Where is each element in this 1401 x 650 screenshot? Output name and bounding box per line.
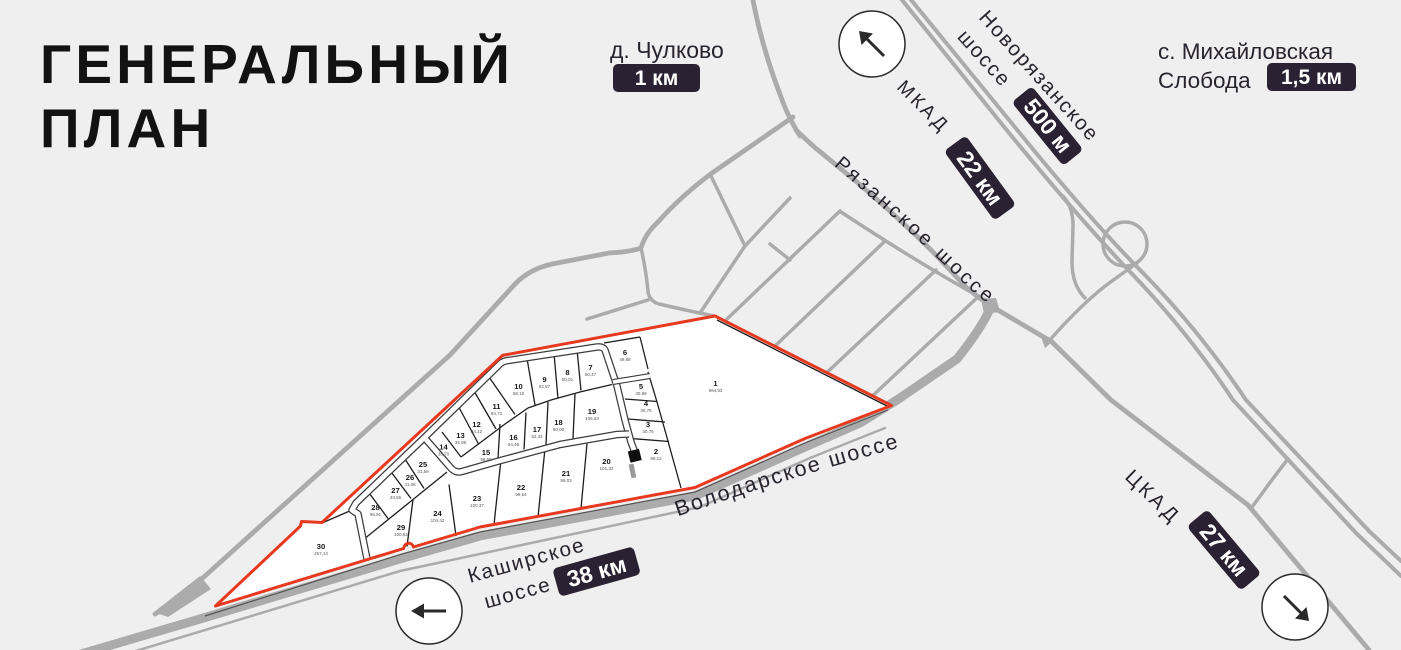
svg-text:100,82: 100,82 [394, 532, 408, 537]
svg-text:50,01: 50,01 [562, 377, 574, 382]
svg-text:д. Чулково: д. Чулково [610, 37, 724, 63]
svg-text:94,72: 94,72 [491, 411, 503, 416]
svg-text:19: 19 [588, 407, 596, 416]
svg-text:1 км: 1 км [635, 67, 679, 90]
svg-text:104,42: 104,42 [431, 518, 445, 523]
svg-text:30: 30 [317, 542, 325, 551]
svg-text:33,56: 33,56 [390, 495, 402, 500]
svg-text:30,75: 30,75 [642, 429, 654, 434]
svg-text:49,88: 49,88 [619, 357, 631, 362]
svg-text:9: 9 [542, 375, 546, 384]
svg-text:24: 24 [433, 509, 442, 518]
svg-text:12: 12 [472, 420, 480, 429]
svg-text:99,54: 99,54 [515, 492, 527, 497]
svg-text:30,76: 30,76 [640, 408, 652, 413]
svg-text:7: 7 [588, 363, 592, 372]
svg-text:29: 29 [397, 523, 405, 532]
svg-text:13: 13 [456, 431, 464, 440]
svg-text:31,59: 31,59 [417, 469, 429, 474]
svg-text:994,93: 994,93 [709, 388, 723, 393]
svg-text:2: 2 [654, 447, 658, 456]
svg-text:ГЕНЕРАЛЬНЫЙ: ГЕНЕРАЛЬНЫЙ [40, 32, 514, 95]
svg-text:35,98: 35,98 [455, 440, 467, 445]
svg-text:8: 8 [565, 368, 569, 377]
svg-text:18: 18 [554, 418, 562, 427]
svg-text:68,19: 68,19 [513, 391, 525, 396]
svg-text:25: 25 [419, 460, 428, 469]
svg-text:14: 14 [439, 443, 448, 452]
svg-text:21: 21 [562, 469, 571, 478]
svg-text:1,5 км: 1,5 км [1281, 66, 1342, 89]
svg-text:267,14: 267,14 [314, 551, 328, 556]
svg-text:26: 26 [406, 473, 414, 482]
svg-text:6: 6 [623, 348, 627, 357]
svg-text:11: 11 [492, 402, 501, 411]
svg-text:34,12: 34,12 [471, 429, 483, 434]
svg-text:54,46: 54,46 [508, 442, 520, 447]
svg-text:35,70: 35,70 [438, 452, 450, 457]
svg-text:101,32: 101,32 [600, 466, 614, 471]
svg-text:52,42: 52,42 [531, 434, 543, 439]
svg-text:17: 17 [533, 425, 541, 434]
svg-text:с. Михайловская: с. Михайловская [1158, 39, 1333, 64]
svg-text:50,00: 50,00 [553, 427, 565, 432]
svg-text:50,47: 50,47 [585, 372, 597, 377]
svg-text:22: 22 [517, 483, 525, 492]
svg-text:ПЛАН: ПЛАН [40, 97, 214, 159]
svg-text:105,63: 105,63 [585, 416, 599, 421]
svg-text:23: 23 [473, 494, 481, 503]
svg-text:15: 15 [482, 448, 491, 457]
svg-text:3: 3 [646, 420, 650, 429]
svg-text:31,08: 31,08 [404, 482, 416, 487]
svg-text:Слобода: Слобода [1158, 68, 1251, 93]
svg-text:20: 20 [602, 457, 610, 466]
svg-text:99,03: 99,03 [560, 478, 572, 483]
svg-text:10: 10 [514, 382, 522, 391]
svg-text:27: 27 [391, 486, 399, 495]
svg-text:100,37: 100,37 [470, 503, 484, 508]
svg-text:52,87: 52,87 [539, 384, 551, 389]
svg-text:16: 16 [509, 433, 517, 442]
svg-text:99,12: 99,12 [650, 456, 662, 461]
svg-text:30,88: 30,88 [635, 391, 647, 396]
svg-text:96,91: 96,91 [370, 512, 382, 517]
svg-text:28: 28 [371, 503, 379, 512]
svg-text:58,69: 58,69 [480, 457, 492, 462]
